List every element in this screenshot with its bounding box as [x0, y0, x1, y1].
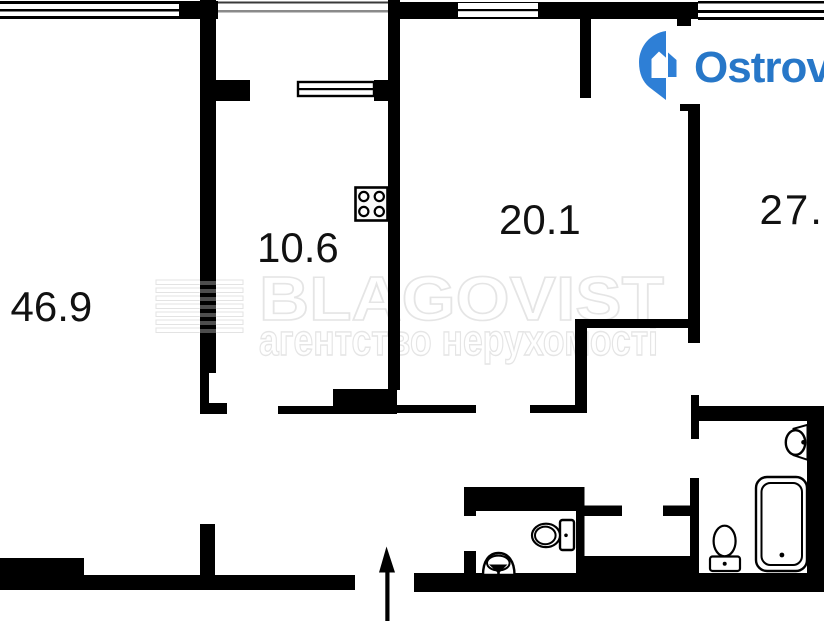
svg-text:27.: 27. — [760, 186, 824, 233]
svg-text:46.9: 46.9 — [11, 283, 93, 330]
svg-text:10.6: 10.6 — [257, 224, 339, 271]
svg-text:20.1: 20.1 — [499, 196, 581, 243]
svg-text:Ostrov: Ostrov — [694, 43, 824, 92]
